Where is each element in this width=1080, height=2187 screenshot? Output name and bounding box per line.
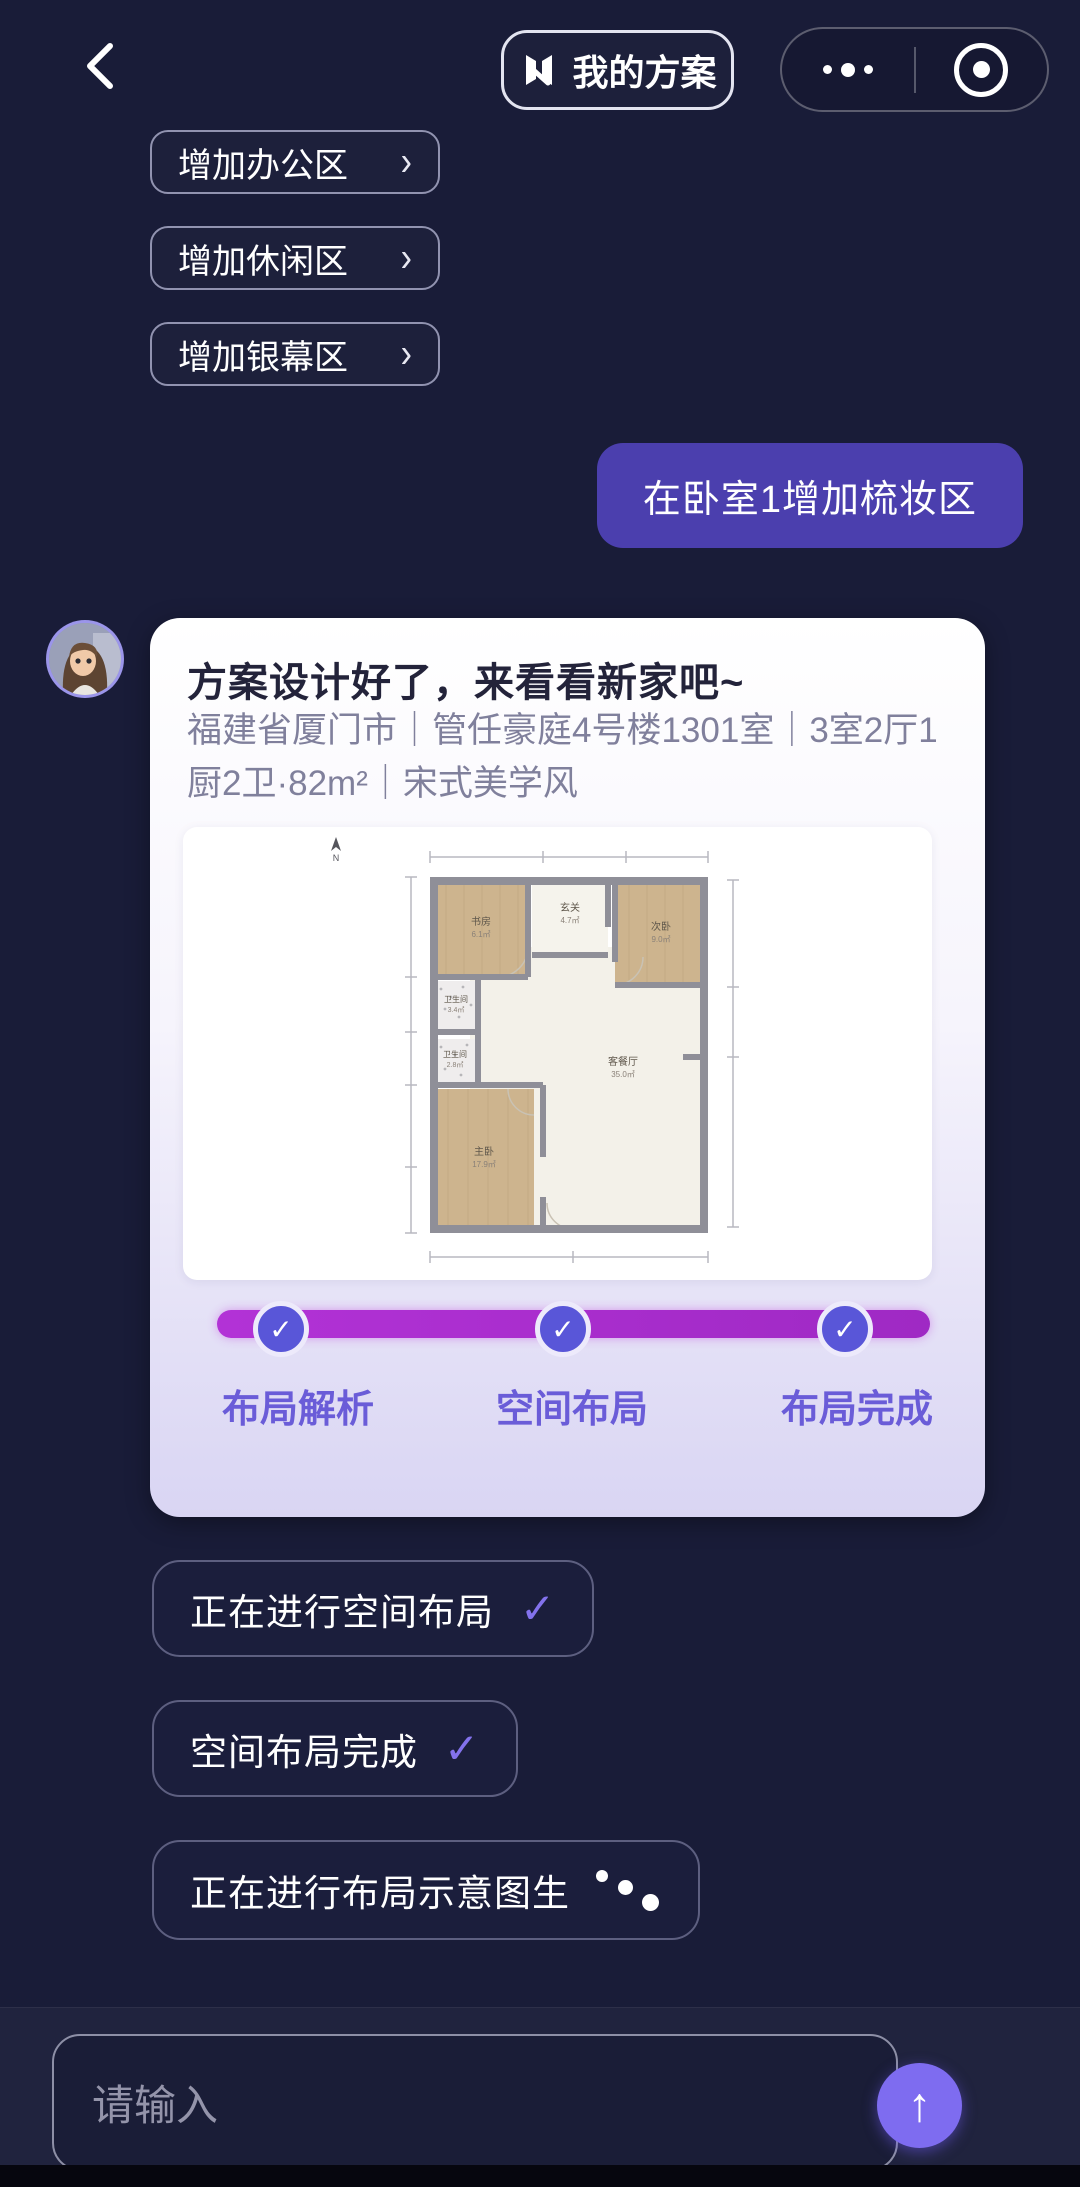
suggestion-label: 增加休闲区 — [178, 234, 348, 283]
svg-text:主卧: 主卧 — [474, 1145, 494, 1158]
back-button[interactable] — [72, 38, 128, 94]
step-label-done: 布局完成 — [781, 1378, 933, 1433]
step-label-parse: 布局解析 — [222, 1378, 374, 1433]
input-bar: 请输入 ↑ — [0, 2007, 1080, 2187]
svg-text:2.8㎡: 2.8㎡ — [447, 1061, 464, 1069]
input-placeholder: 请输入 — [92, 2072, 218, 2133]
my-plans-label: 我的方案 — [572, 44, 716, 96]
suggestion-add-screen[interactable]: 增加银幕区 › — [150, 322, 440, 386]
chevron-right-icon: › — [401, 331, 412, 378]
status-text: 正在进行空间布局 — [190, 1582, 494, 1636]
avatar-girl-illustration — [49, 623, 121, 695]
close-minimize-button[interactable] — [916, 43, 1048, 97]
bottom-bar — [0, 2165, 1080, 2187]
user-message-bubble: 在卧室1增加梳妆区 — [597, 443, 1023, 548]
chevron-right-icon: › — [401, 235, 412, 282]
svg-text:4.7㎡: 4.7㎡ — [560, 916, 579, 925]
floor-plan-image[interactable]: N — [183, 827, 932, 1280]
north-arrow-icon: N — [331, 837, 341, 863]
svg-text:3.4㎡: 3.4㎡ — [448, 1006, 465, 1014]
status-chip-diagram-generating: 正在进行布局示意图生 — [152, 1840, 700, 1940]
arrow-up-icon: ↑ — [908, 2078, 932, 2133]
assistant-plan-card: 方案设计好了，来看看新家吧~ 福建省厦门市｜管任豪庭4号楼1301室｜3室2厅1… — [150, 618, 985, 1517]
svg-text:卫生间: 卫生间 — [443, 1049, 467, 1059]
suggestion-label: 增加办公区 — [178, 138, 348, 187]
app-screen: 我的方案 增加办公区 › 增加休闲区 › 增加银幕区 › 在卧室1增加梳妆区 — [0, 0, 1080, 2187]
status-text: 空间布局完成 — [190, 1722, 418, 1776]
status-chip-layout-complete: 空间布局完成 ✓ — [152, 1700, 518, 1797]
svg-text:6.1㎡: 6.1㎡ — [471, 930, 490, 939]
step-label-layout: 空间布局 — [496, 1378, 648, 1433]
check-icon: ✓ — [520, 1584, 556, 1633]
miniprogram-capsule — [780, 27, 1049, 112]
check-icon: ✓ — [551, 1313, 574, 1346]
svg-text:9.0㎡: 9.0㎡ — [651, 935, 670, 944]
suggestion-add-office[interactable]: 增加办公区 › — [150, 130, 440, 194]
svg-text:客餐厅: 客餐厅 — [608, 1055, 638, 1068]
plans-icon — [518, 49, 560, 91]
card-title: 方案设计好了，来看看新家吧~ — [187, 650, 744, 708]
card-subtitle: 福建省厦门市｜管任豪庭4号楼1301室｜3室2厅1厨2卫·82m²｜宋式美学风 — [187, 704, 949, 810]
send-button[interactable]: ↑ — [877, 2063, 962, 2148]
chevron-left-icon — [80, 38, 120, 94]
status-text: 正在进行布局示意图生 — [190, 1863, 570, 1917]
check-icon: ✓ — [833, 1313, 856, 1346]
progress-check-2: ✓ — [535, 1301, 591, 1357]
assistant-avatar — [46, 620, 124, 698]
progress-check-3: ✓ — [817, 1301, 873, 1357]
svg-text:次卧: 次卧 — [651, 920, 671, 933]
room-study — [434, 881, 528, 977]
svg-text:玄关: 玄关 — [560, 901, 580, 914]
progress-check-1: ✓ — [253, 1301, 309, 1357]
svg-text:17.9㎡: 17.9㎡ — [472, 1160, 496, 1169]
svg-text:N: N — [333, 853, 340, 863]
svg-text:书房: 书房 — [471, 915, 491, 928]
floor-plan-drawing: N — [183, 827, 932, 1280]
suggestion-label: 增加银幕区 — [178, 330, 348, 379]
more-button[interactable] — [782, 63, 914, 77]
status-chip-layout-running: 正在进行空间布局 ✓ — [152, 1560, 594, 1657]
target-circle-icon — [954, 43, 1008, 97]
room-bath2 — [434, 1039, 476, 1083]
typing-dots-icon — [596, 1868, 662, 1912]
ellipsis-icon — [823, 63, 873, 77]
user-message-text: 在卧室1增加梳妆区 — [643, 468, 977, 523]
svg-text:卫生间: 卫生间 — [444, 994, 468, 1004]
my-plans-button[interactable]: 我的方案 — [501, 30, 734, 110]
message-input[interactable]: 请输入 — [52, 2034, 898, 2171]
suggestion-add-leisure[interactable]: 增加休闲区 › — [150, 226, 440, 290]
svg-text:35.0㎡: 35.0㎡ — [611, 1070, 635, 1079]
chevron-right-icon: › — [401, 139, 412, 186]
check-icon: ✓ — [444, 1724, 480, 1773]
check-icon: ✓ — [269, 1313, 292, 1346]
